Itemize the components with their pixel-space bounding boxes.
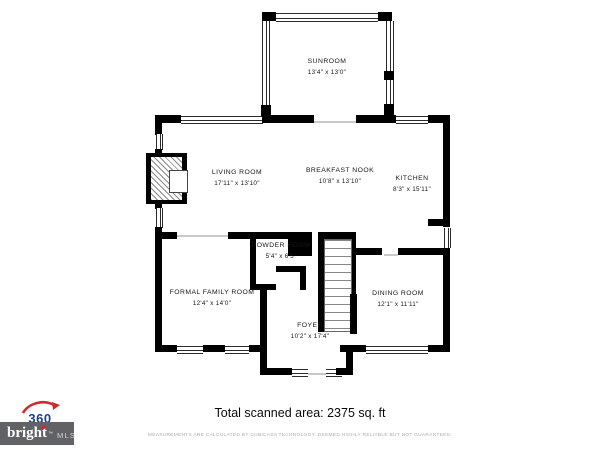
room-name: DINING ROOM	[372, 289, 424, 300]
room-label-dining-room: DINING ROOM 12'1" x 11'11"	[372, 289, 424, 309]
wall-segment	[443, 248, 450, 352]
total-scanned-area: Total scanned area: 2375 sq. ft	[0, 406, 600, 420]
wall-segment	[155, 345, 177, 352]
wall-segment	[378, 12, 392, 21]
wall-segment	[300, 270, 306, 290]
doorway-opening	[384, 254, 398, 256]
room-label-breakfast-nook: BREAKFAST NOOK 10'8" x 13'10"	[306, 166, 374, 186]
window-symbol	[366, 346, 428, 354]
wall-segment	[318, 232, 356, 239]
wall-segment	[428, 345, 450, 352]
window-symbol	[292, 369, 308, 377]
wall-segment	[356, 248, 382, 255]
room-dims: 10'8" x 13'10"	[306, 177, 374, 186]
room-dims: 17'11" x 13'10"	[212, 179, 262, 188]
room-name: FORMAL FAMILY ROOM	[170, 288, 255, 299]
wall-segment	[350, 294, 357, 334]
floorplan-drawing: SUNROOM 13'4" x 13'0" LIVING ROOM 17'11"…	[0, 0, 600, 450]
wall-segment	[428, 219, 450, 226]
room-dims: 8'3" x 15'11"	[393, 185, 431, 194]
wall-segment	[384, 71, 394, 80]
doorway-opening	[314, 121, 356, 123]
wall-segment	[336, 368, 353, 375]
room-dims: 12'1" x 11'11"	[372, 300, 424, 309]
room-dims: 13'4" x 13'0"	[308, 68, 347, 77]
room-name: SUNROOM	[308, 57, 347, 68]
wall-segment	[203, 345, 225, 352]
room-dims: 12'4" x 14'0"	[170, 299, 255, 308]
window-symbol	[181, 116, 263, 124]
wall-segment	[155, 232, 177, 239]
window-symbol	[262, 21, 270, 105]
mls-label: MLS	[57, 431, 76, 440]
window-symbol	[276, 13, 378, 22]
wall-segment	[155, 239, 162, 352]
room-dims: 10'2" x 17'4"	[291, 332, 329, 341]
room-name: KITCHEN	[393, 174, 431, 185]
wall-segment	[356, 115, 396, 123]
window-symbol	[156, 208, 163, 228]
window-symbol	[396, 116, 428, 124]
room-label-formal-family-room: FORMAL FAMILY ROOM 12'4" x 14'0"	[170, 288, 255, 308]
front-door-opening	[308, 373, 326, 375]
wall-segment	[262, 115, 314, 123]
wall-segment	[340, 345, 366, 352]
room-dims: 5'4" x 6'5"	[252, 252, 311, 261]
room-label-kitchen: KITCHEN 8'3" x 15'11"	[393, 174, 431, 194]
window-symbol	[177, 346, 203, 354]
wall-segment	[250, 232, 292, 239]
window-symbol	[444, 228, 451, 248]
floorplan-page: SUNROOM 13'4" x 13'0" LIVING ROOM 17'11"…	[0, 0, 600, 450]
room-label-sunroom: SUNROOM 13'4" x 13'0"	[308, 57, 347, 77]
staircase	[324, 239, 352, 332]
room-name: BREAKFAST NOOK	[306, 166, 374, 177]
window-symbol	[386, 80, 394, 104]
window-symbol	[225, 346, 249, 354]
wall-segment	[260, 284, 267, 345]
window-symbol	[386, 21, 394, 71]
logo-bright-mls: bright™ MLS	[0, 422, 74, 445]
trademark-symbol: ™	[48, 431, 53, 437]
wall-segment	[262, 12, 276, 21]
room-label-foyer: FOYER 10'2" x 17'4"	[291, 321, 329, 341]
wall-segment	[260, 368, 292, 375]
measurement-disclaimer: MEASUREMENTS ARE CALCULATED BY CUBICASA …	[0, 433, 600, 438]
wall-segment	[155, 115, 162, 135]
room-label-living-room: LIVING ROOM 17'11" x 13'10"	[212, 168, 262, 188]
window-symbol	[156, 134, 163, 150]
fireplace-firebox	[169, 170, 188, 193]
doorway-opening	[177, 235, 228, 237]
wall-segment	[443, 115, 450, 227]
room-label-powder-room: POWDER ROOM 5'4" x 6'5"	[252, 241, 311, 261]
room-name: POWDER ROOM	[252, 241, 311, 252]
room-name: FOYER	[291, 321, 329, 332]
room-name: LIVING ROOM	[212, 168, 262, 179]
